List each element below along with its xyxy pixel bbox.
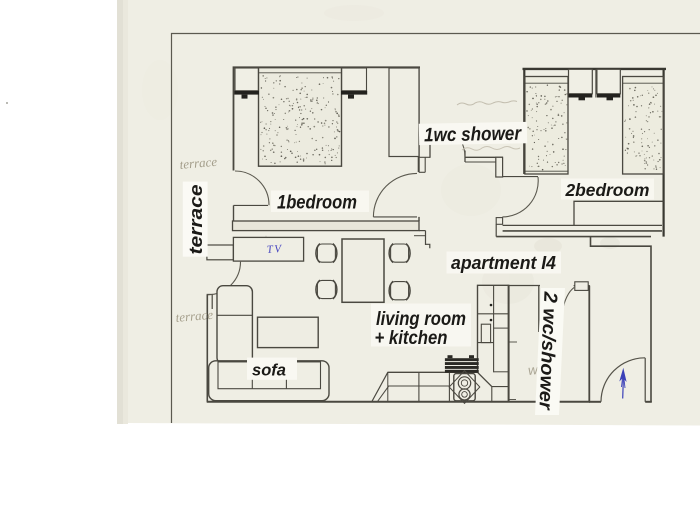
svg-text:living room: living room <box>376 309 466 330</box>
svg-text:1wc shower: 1wc shower <box>424 123 523 147</box>
svg-text:sofa: sofa <box>252 361 286 380</box>
svg-text:2bedroom: 2bedroom <box>565 180 650 200</box>
svg-text:TV: TV <box>266 243 283 256</box>
svg-text:+ kitchen: + kitchen <box>375 328 448 349</box>
svg-text:terrace: terrace <box>186 185 206 255</box>
svg-text:1bedroom: 1bedroom <box>277 193 357 214</box>
svg-text:apartment I4: apartment I4 <box>451 252 556 273</box>
